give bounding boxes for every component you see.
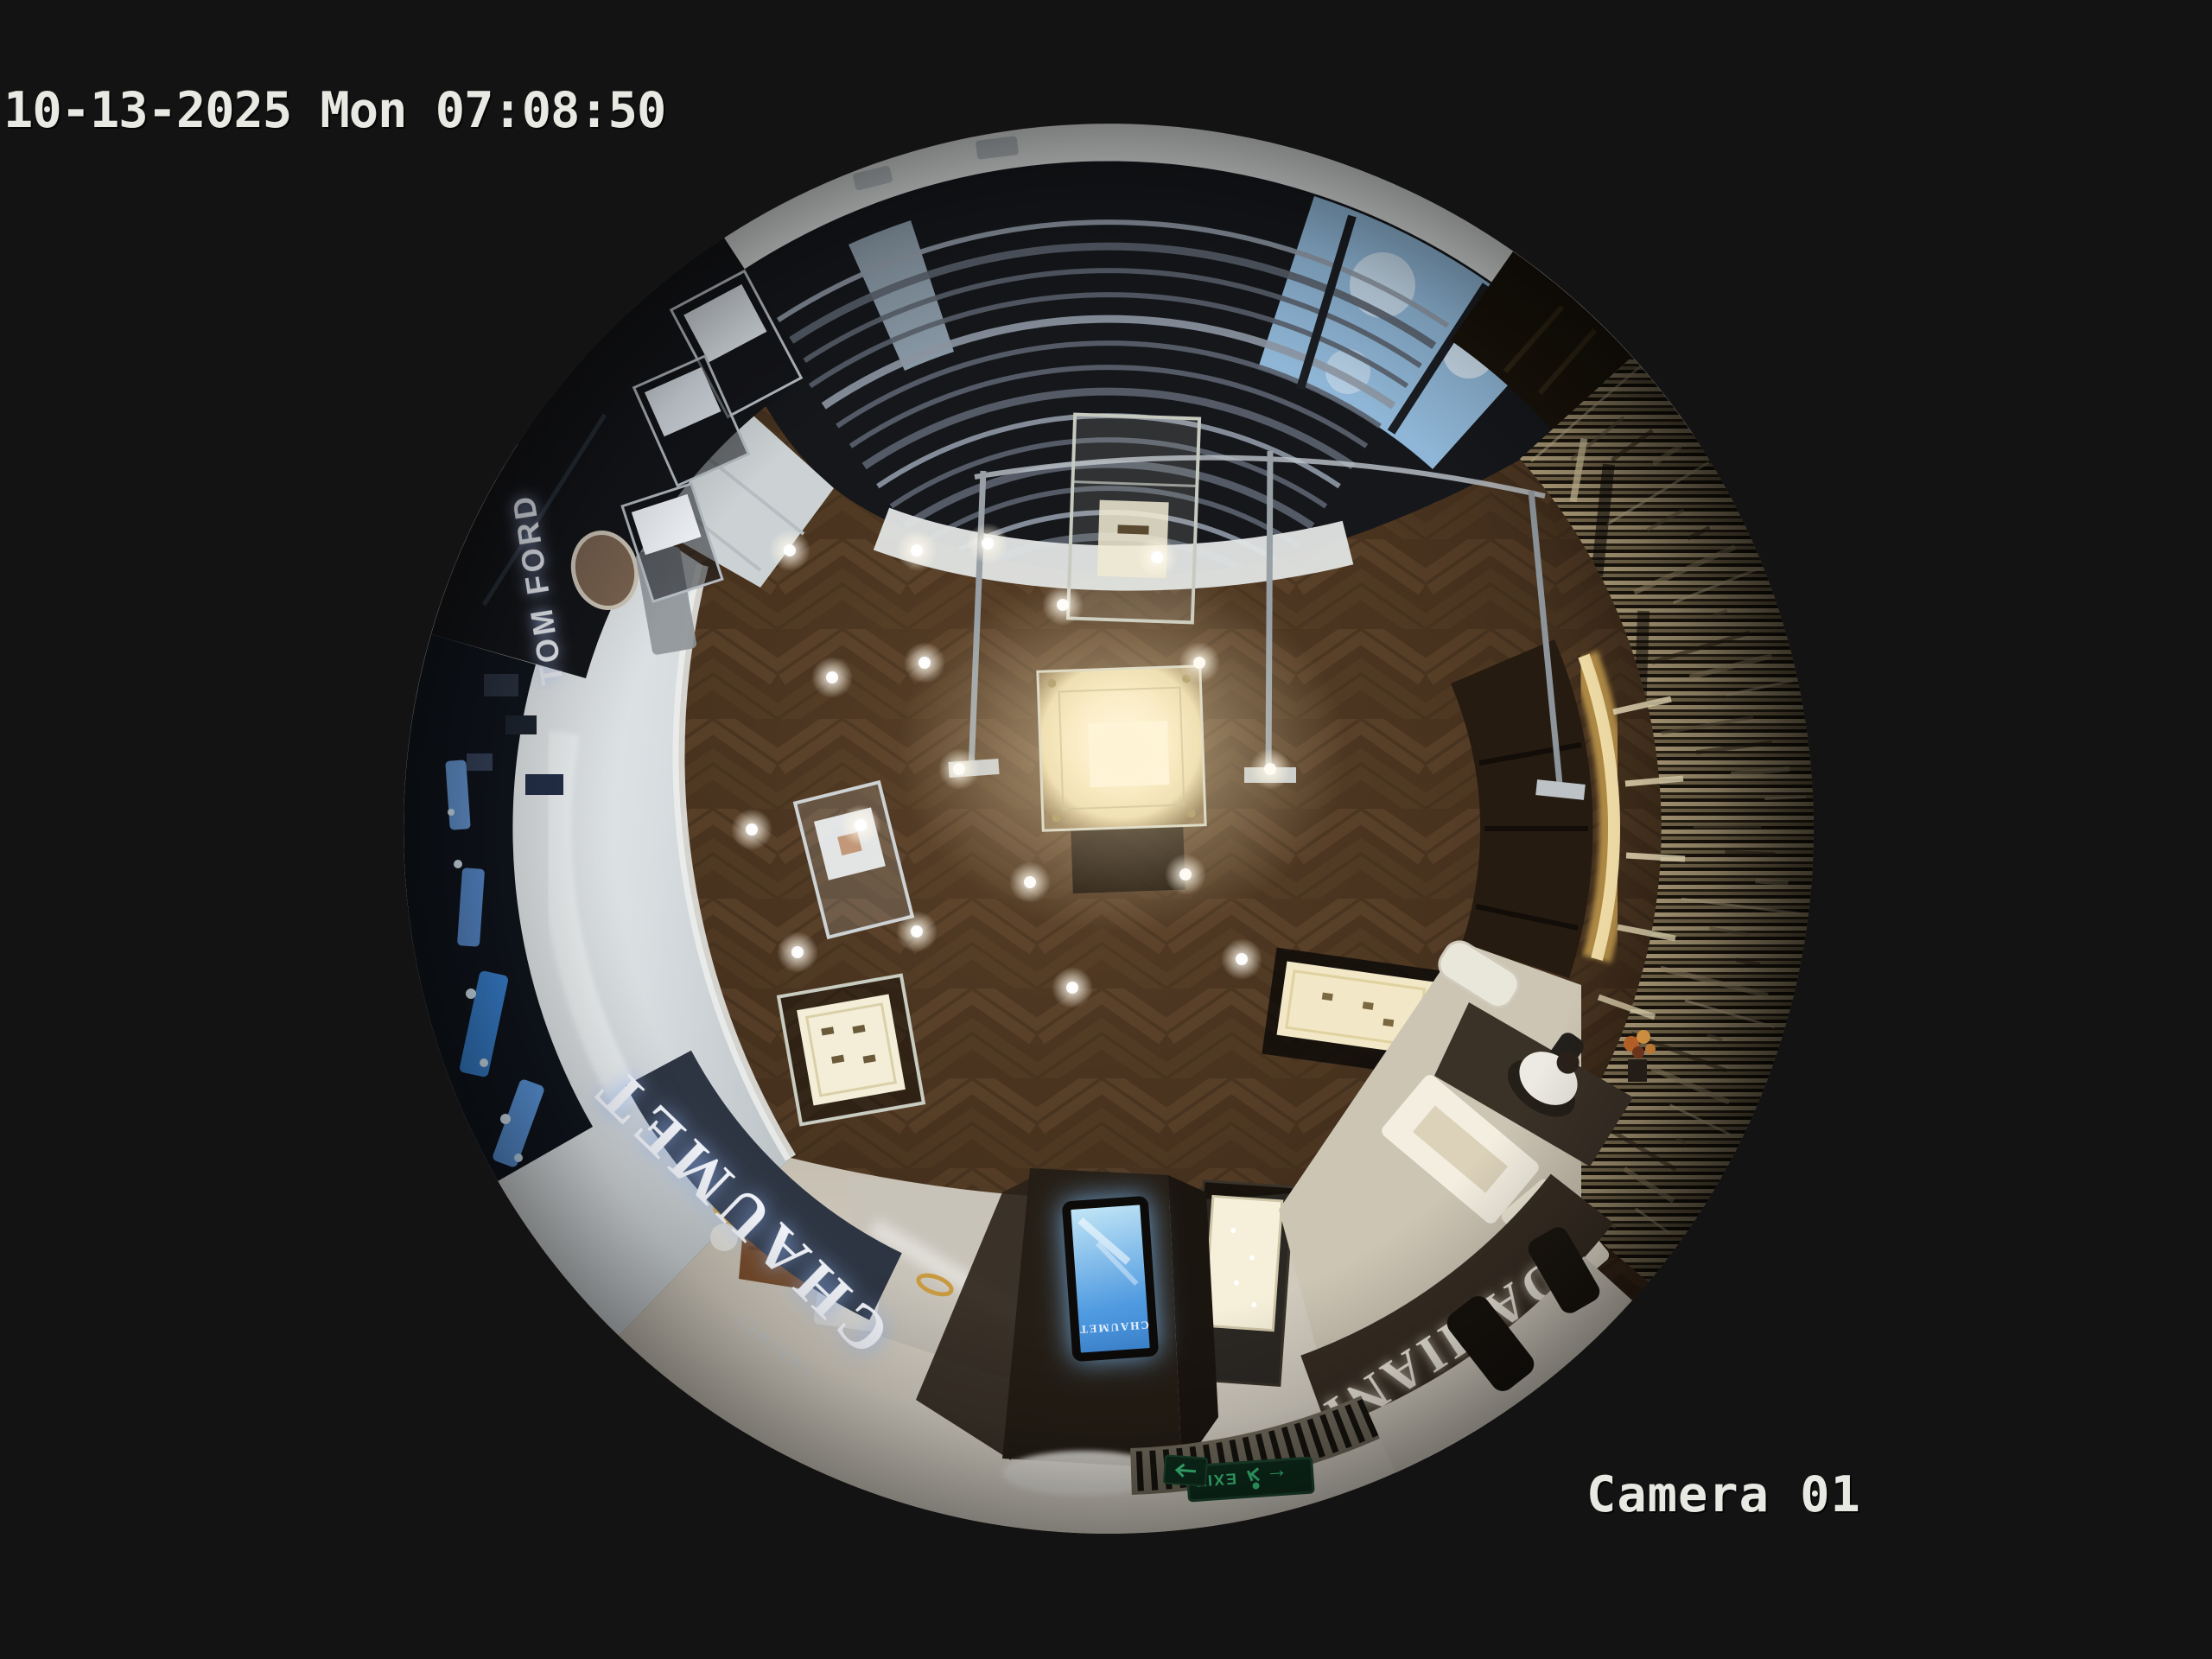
vignette xyxy=(404,124,1814,1534)
cctv-frame: 10-13-2025 Mon 07:08:50 xyxy=(0,0,2212,1659)
fisheye-view: TOM FORD xyxy=(0,0,2212,1659)
osd-timestamp: 10-13-2025 Mon 07:08:50 xyxy=(3,86,665,136)
camera-label: Camera 01 xyxy=(1586,1471,1861,1520)
